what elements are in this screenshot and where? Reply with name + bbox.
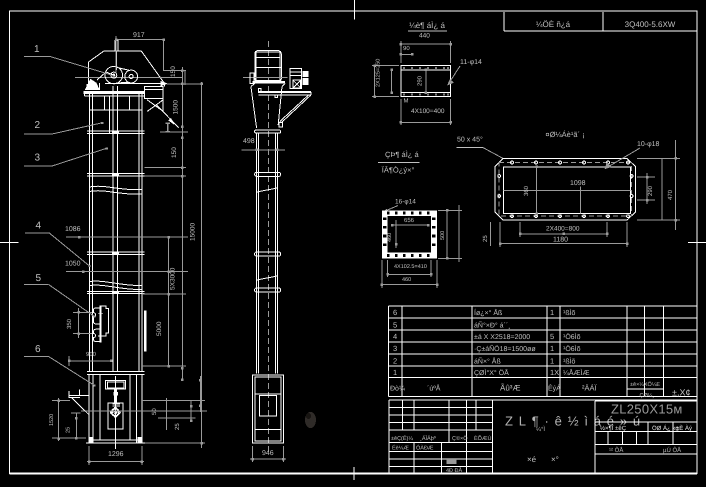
svg-text:´úºÅ: ´úºÅ <box>427 384 441 393</box>
svg-text:±á X X2518=2000: ±á X X2518=2000 <box>474 333 530 341</box>
svg-text:90: 90 <box>403 45 410 52</box>
svg-text:1098: 1098 <box>570 180 586 187</box>
svg-text:±,X¢: ±,X¢ <box>672 388 690 398</box>
svg-text:¹ßÌõ: ¹ßÌõ <box>563 356 576 365</box>
svg-text:6: 6 <box>393 308 397 317</box>
svg-text:¹ßÌõ: ¹ßÌõ <box>563 308 576 317</box>
svg-text:3: 3 <box>35 153 41 164</box>
svg-text:¤Ø¼Áè¹ã´ ¡: ¤Ø¼Áè¹ã´ ¡ <box>545 130 584 139</box>
svg-text:¼°Ì: ¼°Ì <box>536 425 545 433</box>
svg-text:2: 2 <box>35 120 41 131</box>
svg-text:5: 5 <box>36 273 42 284</box>
svg-text:1: 1 <box>550 344 554 353</box>
svg-text:5000: 5000 <box>156 321 163 336</box>
svg-text:4: 4 <box>36 221 42 232</box>
svg-text:Ãû³Æ: Ãû³Æ <box>500 383 520 393</box>
svg-text:¹Ö6Ìõ: ¹Ö6Ìõ <box>563 332 581 341</box>
svg-text:1050: 1050 <box>65 261 81 268</box>
svg-text:²ÄÁÏ: ²ÄÁÏ <box>582 384 598 393</box>
svg-text:470: 470 <box>667 189 674 200</box>
svg-text:150: 150 <box>170 66 177 77</box>
svg-text:1: 1 <box>393 368 397 377</box>
svg-text:1X: 1X <box>550 368 559 377</box>
svg-text:ÇØ¼¸: ÇØ¼¸ <box>640 393 655 399</box>
svg-text:500: 500 <box>440 231 446 240</box>
svg-text:1: 1 <box>550 356 554 365</box>
svg-text:¼ÅÆÌÆ: ¼ÅÆÌÆ <box>563 368 589 377</box>
svg-text:1500: 1500 <box>173 100 180 115</box>
svg-text:150: 150 <box>171 147 178 158</box>
svg-text:Éè¼Æ: Éè¼Æ <box>392 445 409 452</box>
svg-text:15000: 15000 <box>190 223 197 241</box>
svg-text:360: 360 <box>523 185 530 196</box>
svg-text:10-φ18: 10-φ18 <box>637 141 660 148</box>
svg-text:áÑ×° Åß: áÑ×° Åß <box>474 356 501 365</box>
svg-text:¹Ö6Ìõ: ¹Ö6Ìõ <box>563 344 581 353</box>
svg-text:ÊýÁ: ÊýÁ <box>548 384 561 393</box>
svg-text:M: M <box>404 98 409 105</box>
svg-text:2X125=250: 2X125=250 <box>376 59 382 87</box>
svg-text:×°: ×° <box>551 455 559 464</box>
svg-text:±êÇ(Ê)¼: ±êÇ(Ê)¼ <box>391 435 413 442</box>
svg-text:460: 460 <box>387 233 393 242</box>
svg-text:áÑ°×Ð° á´´¸: áÑ°×Ð° á´´¸ <box>474 320 511 329</box>
svg-text:1180: 1180 <box>553 237 568 244</box>
svg-text:350: 350 <box>66 318 73 329</box>
svg-text:¹² ÕÅ: ¹² ÕÅ <box>609 446 623 454</box>
svg-text:3Q400-5.6XW: 3Q400-5.6XW <box>625 20 676 29</box>
svg-text:µÚ ÕÅ: µÚ ÕÅ <box>663 446 681 454</box>
svg-text:Íø¿×° Åß: Íø¿×° Åß <box>474 308 502 317</box>
svg-text:11-φ14: 11-φ14 <box>460 59 482 66</box>
svg-text:ÖØ Á¿ kg: ÖØ Á¿ kg <box>652 424 679 432</box>
svg-text:ÈÕÆÚ: ÈÕÆÚ <box>474 435 491 442</box>
svg-text:±ê×¼XÖ¼E: ±ê×¼XÖ¼E <box>630 381 660 388</box>
svg-text:±È Àý: ±È Àý <box>676 424 692 432</box>
svg-text:ÇÞ¶ áÌ¿ á: ÇÞ¶ áÌ¿ á <box>385 150 419 159</box>
svg-text:5: 5 <box>550 332 554 341</box>
svg-text:5X3000: 5X3000 <box>170 267 177 290</box>
svg-text:16-φ14: 16-φ14 <box>395 199 416 206</box>
svg-text:25: 25 <box>66 427 72 433</box>
svg-text:¸ÄÎÄþº: ¸ÄÎÄþº <box>420 435 436 442</box>
svg-text:4Ð ÐÅ: 4Ð ÐÅ <box>446 467 463 474</box>
svg-text:ÓÀÐÆ: ÓÀÐÆ <box>416 445 434 452</box>
svg-text:1: 1 <box>34 44 40 55</box>
svg-text:290: 290 <box>647 185 654 196</box>
svg-text:917: 917 <box>133 32 145 39</box>
svg-text:4X102.5=410: 4X102.5=410 <box>394 264 427 270</box>
svg-text:ÏÂ¶Ò¿ý×°: ÏÂ¶Ò¿ý×° <box>382 166 415 175</box>
svg-text:1296: 1296 <box>108 451 124 458</box>
svg-text:5: 5 <box>393 320 397 329</box>
svg-text:Ç©×Ö: Ç©×Ö <box>452 435 468 442</box>
svg-text:ZL250X15м: ZL250X15м <box>611 402 683 417</box>
svg-text:6: 6 <box>35 344 41 355</box>
svg-text:1086: 1086 <box>65 226 81 233</box>
svg-text:¼è¶ áÌ¿ á: ¼è¶ áÌ¿ á <box>409 21 445 30</box>
svg-text:900: 900 <box>86 351 97 358</box>
svg-text:×é: ×é <box>527 455 537 464</box>
svg-text:2: 2 <box>393 356 397 365</box>
svg-text:3: 3 <box>393 344 397 353</box>
svg-text:290: 290 <box>417 75 424 86</box>
svg-text:50 x 45°: 50 x 45° <box>457 137 483 144</box>
svg-text:440: 440 <box>419 33 430 40</box>
svg-text:½×¶Î ±êÇ: ½×¶Î ±êÇ <box>600 424 627 432</box>
svg-text:ÇØÌ°X° ÖÅ: ÇØÌ°X° ÖÅ <box>474 368 509 377</box>
svg-text:1: 1 <box>550 308 554 317</box>
svg-text:50: 50 <box>151 408 158 415</box>
svg-text:1520: 1520 <box>49 414 55 426</box>
svg-text:·Ç±áÑÖ18=1500øø: ·Ç±áÑÖ18=1500øø <box>474 344 536 353</box>
svg-text:¼ÖÈ ñ¿á: ¼ÖÈ ñ¿á <box>536 20 571 29</box>
svg-text:25: 25 <box>482 235 489 242</box>
svg-text:656: 656 <box>404 217 415 224</box>
svg-text:4: 4 <box>393 332 397 341</box>
svg-text:2X400=800: 2X400=800 <box>546 226 580 233</box>
svg-text:25: 25 <box>174 423 181 430</box>
svg-text:460: 460 <box>402 277 411 283</box>
svg-text:4X100=400: 4X100=400 <box>411 108 445 115</box>
svg-text:Ðò¼: Ðò¼ <box>390 385 405 393</box>
svg-text:498: 498 <box>243 138 255 145</box>
svg-text:946: 946 <box>262 450 274 457</box>
